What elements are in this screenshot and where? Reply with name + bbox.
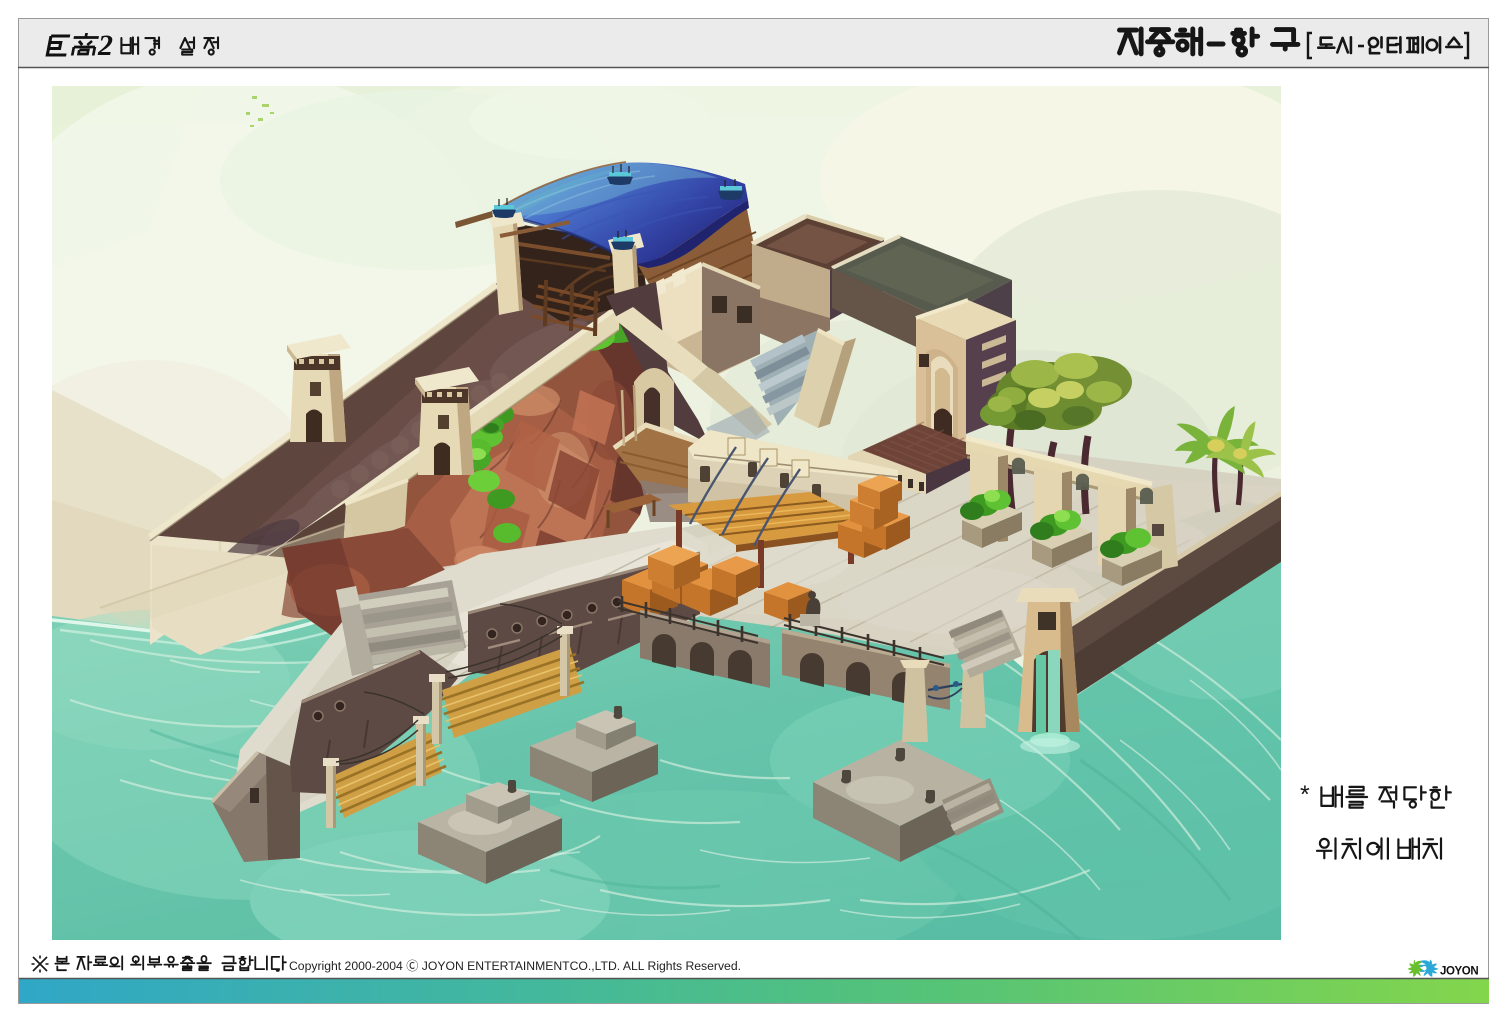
svg-text:Copyright 2000-2004 Ⓒ JOYON EN: Copyright 2000-2004 Ⓒ JOYON ENTERTAINMEN… (289, 959, 741, 973)
svg-text:2: 2 (97, 29, 113, 62)
svg-text:*: * (1300, 781, 1310, 809)
